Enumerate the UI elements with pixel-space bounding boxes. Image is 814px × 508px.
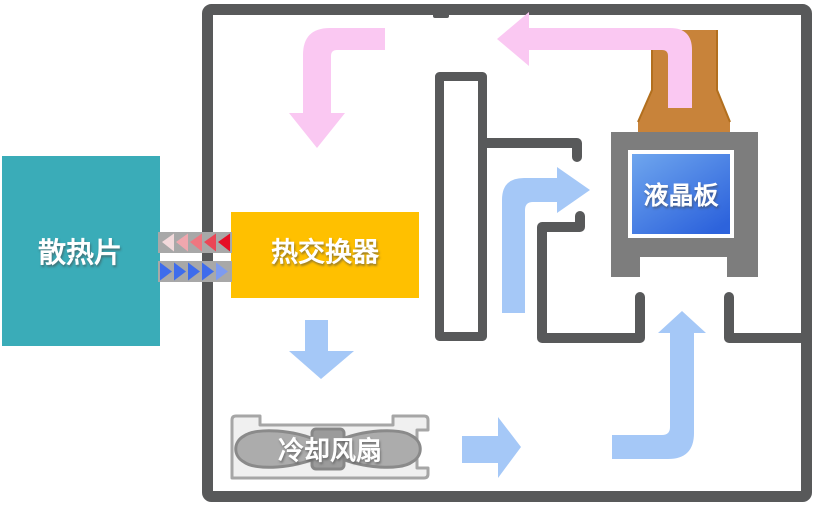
fan-outflow-arrow xyxy=(462,417,521,478)
cool-air-down-arrow xyxy=(289,320,354,379)
heat-pipe-connectors xyxy=(158,232,232,282)
fan-hub xyxy=(312,429,344,469)
hot-air-return-arrowhead-icon xyxy=(497,12,529,66)
right-channel-wall xyxy=(729,297,807,338)
lcd-screen xyxy=(632,154,730,234)
diagram-canvas xyxy=(0,0,814,508)
cooling-fan xyxy=(232,416,428,478)
lcd-frame-notch xyxy=(640,257,727,278)
top-wall-stub xyxy=(433,9,449,18)
heat-exchanger-box xyxy=(231,212,419,298)
heatsink-box xyxy=(2,156,160,346)
cooling-airflow-diagram: 散热片 热交换器 液晶板 冷却风扇 xyxy=(0,0,814,508)
vertical-baffle xyxy=(440,77,483,337)
lcd-panel-assembly xyxy=(611,132,758,278)
upper-partition-wall xyxy=(487,143,577,157)
hot-air-down-arrow xyxy=(289,28,385,148)
